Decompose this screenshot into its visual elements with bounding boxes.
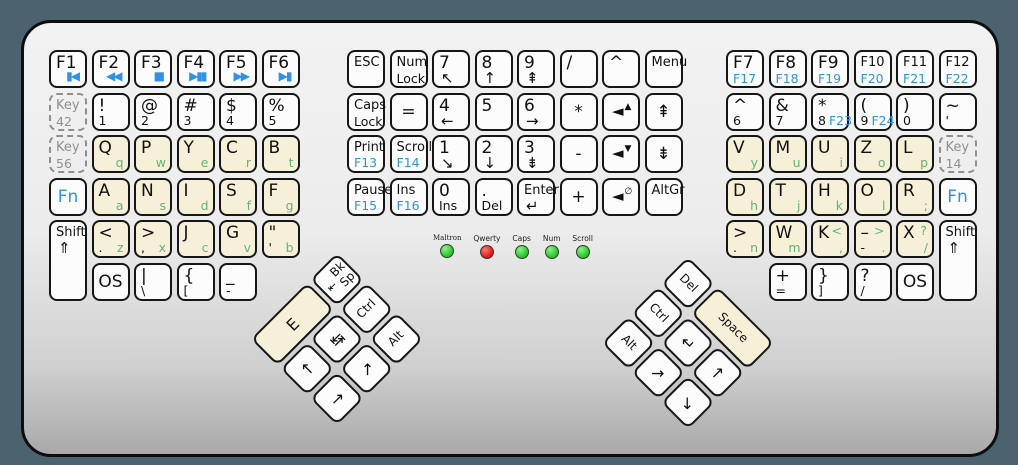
key-14-label: Key (946, 140, 970, 155)
key-f8-label: F8 (776, 53, 797, 73)
key-pause[interactable]: PauseF15 (347, 178, 385, 216)
key-u-qwerty-label: i (840, 155, 843, 170)
key-f12-label: F12 (946, 55, 970, 70)
key-os-left[interactable]: OS (92, 263, 130, 301)
key-g-qwerty-label: v (244, 240, 251, 255)
key-print-bottom-label: F13 (354, 155, 377, 170)
key-a-label: A (99, 181, 111, 201)
key-fn-right[interactable]: Fn (939, 178, 977, 216)
key-d-label: D (733, 181, 746, 201)
key-np4[interactable]: 4← (432, 93, 470, 131)
key-42-sublabel: 42 (56, 114, 72, 129)
key-paren-9-bottom-label: 9F24 (861, 113, 895, 128)
key-menu[interactable]: Menu (645, 50, 683, 88)
key-f7[interactable]: F7F17 (726, 50, 764, 88)
play-pause-icon: ▶▮▮ (189, 69, 207, 83)
key-i-label: I (184, 181, 189, 201)
key-h[interactable]: Hk (811, 178, 849, 216)
key-np8[interactable]: 8↑ (475, 50, 513, 88)
key-equals-label: = (401, 102, 415, 122)
key-i-qwerty-label: d (201, 198, 209, 213)
key-v-label: V (733, 138, 745, 158)
key-h-label: H (818, 181, 831, 201)
key-brace-bracket-right-bottom-label: ] (818, 283, 823, 298)
key-f9-sublabel: F19 (818, 71, 841, 86)
key-percent-5[interactable]: %5 (262, 93, 300, 131)
key-ins-bottom-label: F16 (397, 198, 420, 213)
key-b-label: B (269, 138, 281, 158)
key-b[interactable]: Bt (262, 135, 300, 173)
key-quote-bottom-label: ' (269, 240, 272, 255)
key-m-qwerty-label: u (793, 155, 801, 170)
led-panel: MaltronQwertyCapsNumScroll (433, 234, 593, 259)
key-pipe-backslash-bottom-label: \ (141, 283, 145, 298)
key-shift-left-label: Shift (56, 225, 86, 240)
key-k-alt-label: < (832, 223, 842, 238)
key-s[interactable]: Sf (219, 178, 257, 216)
key-brace-bracket-left[interactable]: {[ (177, 263, 215, 301)
key-t[interactable]: Tj (769, 178, 807, 216)
key-e-thumb[interactable]: E (251, 282, 334, 365)
key-s-label: S (226, 181, 237, 201)
key-alt-left-label: Alt (386, 328, 407, 349)
key-m[interactable]: Mu (769, 135, 807, 173)
key-arrow-low-right-label: ↘ (677, 391, 700, 414)
key-np5[interactable]: 5 (475, 93, 513, 131)
led-indicator-scroll (576, 245, 590, 259)
key-less-dot-bottom-label: . (99, 240, 103, 255)
key-dollar-4-bottom-label: 4 (226, 113, 234, 128)
key-u[interactable]: Ui (811, 135, 849, 173)
key-f8-sublabel: F18 (776, 71, 799, 86)
key-greater-comma-qwerty-label: x (159, 240, 166, 255)
key-fn-right-label: Fn (947, 187, 968, 207)
key-print-label: Print (354, 140, 384, 155)
key-x-alt-label: ? (920, 223, 927, 238)
key-f7-sublabel: F17 (733, 71, 756, 86)
key-np-plus-label: + (571, 187, 585, 207)
key-56[interactable]: Key56 (49, 135, 87, 173)
key-q-label: Q (99, 138, 112, 158)
key-m-label: M (776, 138, 791, 158)
key-c[interactable]: Cr (219, 135, 257, 173)
key-np6-sublabel: → (526, 112, 539, 130)
key-y-label: Y (184, 138, 194, 158)
key-k[interactable]: K,< (811, 220, 849, 258)
volume-up-icon: ◄▲ (612, 102, 631, 120)
key-g-label: G (226, 223, 239, 243)
key-equals[interactable]: = (390, 93, 428, 131)
key-f-qwerty-label: g (286, 198, 294, 213)
key-enter-sublabel: ↵ (526, 197, 539, 215)
led-scroll: Scroll (572, 234, 593, 259)
key-14[interactable]: Key14 (939, 135, 977, 173)
key-np-dot-bottom-label: Del (482, 198, 503, 213)
key-page-up[interactable]: ⇞ (645, 93, 683, 131)
key-space-thumb[interactable]: Space (691, 286, 774, 369)
key-a-qwerty-label: a (116, 198, 124, 213)
key-f5[interactable]: F5▶▶ (219, 50, 257, 88)
led-indicator-caps (515, 245, 529, 259)
key-c-label: C (226, 138, 238, 158)
key-b-qwerty-label: t (289, 155, 294, 170)
key-np1[interactable]: 1↘ (432, 135, 470, 173)
key-n-qwerty-label: s (159, 198, 166, 213)
key-n-label: N (141, 181, 154, 201)
key-brace-bracket-left-bottom-label: [ (184, 283, 189, 298)
led-maltron: Maltron (433, 234, 461, 259)
key-f8[interactable]: F8F18 (769, 50, 807, 88)
key-r-label: R (903, 181, 915, 201)
key-l-label: L (903, 138, 912, 158)
key-greater-dot-n-qwerty-label: n (750, 240, 758, 255)
key-del-thumb-label: Del (676, 272, 700, 296)
key-altgr-label: AltGr (652, 183, 685, 198)
key-l[interactable]: Lp (896, 135, 934, 173)
key-dash-bottom-label: - (861, 240, 866, 255)
key-arrow-up-left-label: ↑ (296, 357, 319, 380)
key-enter-label: Enter (524, 183, 559, 198)
key-z-qwerty-label: o (878, 155, 886, 170)
key-hash-3[interactable]: #3 (177, 93, 215, 131)
key-paren-9[interactable]: (9F24 (854, 93, 892, 131)
key-amp-7[interactable]: &7 (769, 93, 807, 131)
volume-down-icon: ◄▼ (612, 144, 631, 162)
key-plus-equals-bottom-label: = (776, 283, 786, 298)
led-label-num: Num (543, 234, 561, 243)
key-enter[interactable]: Enter↵ (517, 178, 555, 216)
key-scroll-lock[interactable]: ScrollF14 (390, 135, 428, 173)
key-y[interactable]: Ye (177, 135, 215, 173)
key-volume-down[interactable]: ◄▼ (602, 135, 640, 173)
fast-forward-icon: ▶▶ (234, 69, 250, 83)
key-f6[interactable]: F6▶▮ (262, 50, 300, 88)
key-greater-comma-bottom-label: , (141, 240, 145, 255)
key-paren-0[interactable]: )0 (896, 93, 934, 131)
key-question-slash[interactable]: ?/ (854, 263, 892, 301)
key-exclaim-1[interactable]: !1 (92, 93, 130, 131)
key-o-qwerty-label: l (882, 198, 885, 213)
led-qwerty: Qwerty (473, 234, 500, 259)
key-at-2-bottom-label: 2 (141, 113, 149, 128)
key-ctrl-left-label: Ctrl (354, 297, 379, 322)
key-np-divide[interactable]: / (560, 50, 598, 88)
key-shift-left[interactable]: Shift⇑ (49, 220, 87, 301)
key-q-qwerty-label: q (116, 155, 124, 170)
key-hash-3-bottom-label: 3 (184, 113, 192, 128)
key-tab-label: ↹ (326, 328, 349, 351)
key-f2[interactable]: F2◀◀ (92, 50, 130, 88)
key-less-dot-qwerty-label: z (117, 240, 124, 255)
key-o-label: O (861, 181, 874, 201)
key-p-label: P (141, 138, 151, 158)
key-tilde-apostrophe[interactable]: ~' (939, 93, 977, 131)
key-greater-dot-n-bottom-label: . (733, 240, 737, 255)
key-star-8-bottom-label: 8F23 (818, 113, 852, 128)
key-np4-sublabel: ← (441, 112, 454, 130)
key-os-right-label: OS (903, 272, 927, 292)
key-shift-right-sublabel: ⇑ (948, 239, 961, 257)
key-56-label: Key (56, 140, 80, 155)
key-p-qwerty-label: w (156, 155, 166, 170)
key-np-minus-label: - (575, 144, 581, 164)
key-num-lock-label: Num (397, 55, 428, 70)
key-s-qwerty-label: f (247, 198, 251, 213)
key-f11-sublabel: F21 (903, 71, 926, 86)
key-f9-label: F9 (818, 53, 839, 73)
key-page-down[interactable]: ⇟ (645, 135, 683, 173)
key-h-qwerty-label: k (836, 198, 843, 213)
key-v[interactable]: Vy (726, 135, 764, 173)
key-np8-sublabel: ↑ (484, 69, 497, 87)
key-j-qwerty-label: c (202, 240, 209, 255)
key-d[interactable]: Dh (726, 178, 764, 216)
key-ins-label: Ins (397, 183, 416, 198)
key-ctrl-right-label: Ctrl (646, 301, 671, 326)
key-question-slash-bottom-label: / (861, 283, 865, 298)
key-shift-right-label: Shift (946, 225, 976, 240)
key-brace-bracket-right[interactable]: }] (811, 263, 849, 301)
keyboard-body: F1▮◀F2◀◀F3■F4▶▮▮F5▶▶F6▶▮Key42!1@2#3$4%5K… (21, 20, 999, 457)
key-arrow-mid-left-label: ↗ (355, 357, 378, 380)
key-caret-6-bottom-label: 6 (733, 113, 741, 128)
key-paren-9-fkey-label: F24 (871, 113, 894, 128)
key-percent-5-bottom-label: 5 (269, 113, 277, 128)
key-u-label: U (818, 138, 830, 158)
maltron-keyboard-diagram: F1▮◀F2◀◀F3■F4▶▮▮F5▶▶F6▶▮Key42!1@2#3$4%5K… (0, 0, 1018, 465)
key-pause-label: Pause (354, 183, 392, 198)
key-e-thumb-label: E (282, 314, 303, 335)
key-esc-label: ESC (354, 55, 380, 70)
key-np5-label: 5 (482, 96, 493, 116)
key-k-label: K (818, 223, 829, 243)
key-scroll-lock-bottom-label: F14 (397, 155, 420, 170)
key-page-up-label: ⇞ (656, 102, 670, 122)
key-shift-left-sublabel: ⇑ (58, 239, 71, 257)
key-14-sublabel: 14 (946, 156, 962, 171)
key-i[interactable]: Id (177, 178, 215, 216)
key-fn-left-label: Fn (58, 187, 79, 207)
key-np7-sublabel: ↖ (441, 69, 454, 87)
key-arrow-low-left-label: → (326, 387, 349, 410)
key-w[interactable]: Wm (769, 220, 807, 258)
key-o[interactable]: Ol (854, 178, 892, 216)
key-w-qwerty-label: m (788, 240, 800, 255)
key-f11-label: F11 (903, 55, 927, 70)
key-f10[interactable]: F10F20 (854, 50, 892, 88)
key-alt-right-label: Alt (618, 332, 639, 353)
key-c-qwerty-label: r (246, 155, 251, 170)
key-quote[interactable]: "'b (262, 220, 300, 258)
key-f3[interactable]: F3■ (134, 50, 172, 88)
key-return-thumb-label: ↵ (677, 332, 700, 355)
key-esc[interactable]: ESC (347, 50, 385, 88)
led-num: Num (543, 234, 561, 259)
key-dash[interactable]: –-.> (854, 220, 892, 258)
key-space-thumb-label: Space (715, 310, 751, 346)
key-f9[interactable]: F9F19 (811, 50, 849, 88)
key-fn-left[interactable]: Fn (49, 178, 87, 216)
key-f11[interactable]: F11F21 (896, 50, 934, 88)
key-num-lock-sublabel: Lock (397, 71, 426, 86)
key-56-sublabel: 56 (56, 156, 72, 171)
key-np-plus[interactable]: + (560, 178, 598, 216)
key-np-multiply-label: * (574, 102, 583, 122)
key-j-label: J (184, 223, 189, 243)
key-d-qwerty-label: h (750, 198, 758, 213)
stop-icon: ■ (154, 69, 165, 83)
key-caret-6[interactable]: ^6 (726, 93, 764, 131)
key-ins[interactable]: InsF16 (390, 178, 428, 216)
key-np9-sublabel: ⇞ (526, 69, 539, 87)
key-mute[interactable]: ◄∅ (602, 178, 640, 216)
key-amp-7-bottom-label: 7 (776, 113, 784, 128)
key-print[interactable]: PrintF13 (347, 135, 385, 173)
key-caps-lock-sublabel: Lock (354, 114, 383, 129)
led-label-qwerty: Qwerty (473, 234, 500, 243)
key-r-qwerty-label: ; (924, 198, 928, 213)
key-greater-comma[interactable]: >,x (134, 220, 172, 258)
key-f7-label: F7 (733, 53, 754, 73)
key-f10-sublabel: F20 (861, 71, 884, 86)
key-x-label: X (903, 223, 915, 243)
key-f10-label: F10 (861, 55, 885, 70)
key-j[interactable]: Jc (177, 220, 215, 258)
key-volume-up-icon-mark: ▲ (625, 102, 632, 112)
key-underscore-dash[interactable]: _- (219, 263, 257, 301)
key-f12-sublabel: F22 (946, 71, 969, 86)
key-quote-qwerty-label: b (286, 240, 294, 255)
key-altgr[interactable]: AltGr (645, 178, 683, 216)
key-f-label: F (269, 181, 279, 201)
led-indicator-maltron (440, 244, 454, 258)
key-z[interactable]: Zo (854, 135, 892, 173)
led-indicator-qwerty (480, 245, 494, 259)
key-r[interactable]: R; (896, 178, 934, 216)
key-num-lock[interactable]: NumLock (390, 50, 428, 88)
key-caps-lock-label: Caps (354, 98, 386, 113)
key-k-qwerty-label: , (839, 240, 843, 255)
key-less-dot[interactable]: <.z (92, 220, 130, 258)
key-f12[interactable]: F12F22 (939, 50, 977, 88)
key-os-left-label: OS (98, 272, 122, 292)
key-np-minus[interactable]: - (560, 135, 598, 173)
key-exclaim-1-bottom-label: 1 (99, 113, 107, 128)
key-f4[interactable]: F4▶▮▮ (177, 50, 215, 88)
key-dollar-4[interactable]: $4 (219, 93, 257, 131)
key-np1-sublabel: ↘ (441, 154, 454, 172)
key-tilde-apostrophe-bottom-label: ' (946, 113, 949, 128)
key-star-8[interactable]: *8F23 (811, 93, 849, 131)
key-np2[interactable]: 2↓ (475, 135, 513, 173)
key-v-qwerty-label: y (751, 155, 758, 170)
key-dash-alt-label: > (874, 223, 884, 238)
key-np3-sublabel: ⇟ (526, 154, 539, 172)
key-x-qwerty-label: / (924, 240, 928, 255)
left-thumb-cluster: EBk Sp⇤↑↹Ctrl→↗Alt (251, 253, 424, 426)
key-plus-equals[interactable]: += (769, 263, 807, 301)
key-page-down-label: ⇟ (656, 144, 670, 164)
key-underscore-dash-bottom-label: - (226, 283, 231, 298)
key-y-qwerty-label: e (201, 155, 209, 170)
key-arrow-up-right-label: ↑ (706, 361, 729, 384)
key-pipe-backslash[interactable]: |\ (134, 263, 172, 301)
key-caret-mid[interactable]: ^ (602, 50, 640, 88)
key-greater-dot-n[interactable]: >.n (726, 220, 764, 258)
skip-back-icon: ▮◀ (66, 69, 80, 83)
mute-icon: ◄∅ (612, 187, 632, 205)
rewind-icon: ◀◀ (106, 69, 122, 83)
key-caps-lock[interactable]: CapsLock (347, 93, 385, 131)
led-label-maltron: Maltron (433, 234, 461, 242)
key-caret-mid-label: ^ (609, 53, 623, 73)
led-indicator-num (545, 245, 559, 259)
key-np0[interactable]: 0Ins (432, 178, 470, 216)
right-thumb-cluster: DelSpaceCtrl↵↑Alt↗↘ (602, 257, 775, 430)
key-np2-sublabel: ↓ (484, 154, 497, 172)
key-np7[interactable]: 7↖ (432, 50, 470, 88)
key-pause-bottom-label: F15 (354, 198, 377, 213)
key-volume-down-icon-mark: ▼ (625, 144, 632, 154)
key-f[interactable]: Fg (262, 178, 300, 216)
key-dash-qwerty-label: . (882, 240, 886, 255)
key-a[interactable]: Aa (92, 178, 130, 216)
key-t-label: T (776, 181, 786, 201)
key-l-qwerty-label: p (920, 155, 928, 170)
key-np-divide-label: / (567, 53, 573, 73)
led-label-caps: Caps (512, 234, 531, 243)
key-scroll-lock-label: Scroll (397, 140, 433, 155)
key-z-label: Z (861, 138, 873, 158)
key-mute-icon-mark: ∅ (625, 187, 633, 197)
key-np0-bottom-label: Ins (439, 198, 457, 213)
key-42-label: Key (56, 98, 80, 113)
key-g[interactable]: Gv (219, 220, 257, 258)
key-p[interactable]: Pw (134, 135, 172, 173)
key-t-qwerty-label: j (797, 198, 800, 213)
key-42[interactable]: Key42 (49, 93, 87, 131)
key-shift-right[interactable]: Shift⇑ (939, 220, 977, 301)
key-n[interactable]: Ns (134, 178, 172, 216)
key-np9[interactable]: 9⇞ (517, 50, 555, 88)
key-volume-up[interactable]: ◄▲ (602, 93, 640, 131)
key-np-dot[interactable]: .Del (475, 178, 513, 216)
skip-forward-icon: ▶▮ (279, 69, 293, 83)
led-label-scroll: Scroll (572, 234, 593, 243)
key-q[interactable]: Qq (92, 135, 130, 173)
key-arrow-mid-right-label: ↗ (647, 361, 670, 384)
key-np-multiply[interactable]: * (560, 93, 598, 131)
key-paren-0-bottom-label: 0 (903, 113, 911, 128)
key-at-2[interactable]: @2 (134, 93, 172, 131)
key-np6[interactable]: 6→ (517, 93, 555, 131)
key-menu-label: Menu (652, 55, 688, 70)
key-x[interactable]: X/? (896, 220, 934, 258)
key-np3[interactable]: 3⇟ (517, 135, 555, 173)
key-f1[interactable]: F1▮◀ (49, 50, 87, 88)
key-star-8-fkey-label: F23 (829, 113, 852, 128)
led-caps: Caps (512, 234, 531, 259)
key-os-right[interactable]: OS (896, 263, 934, 301)
